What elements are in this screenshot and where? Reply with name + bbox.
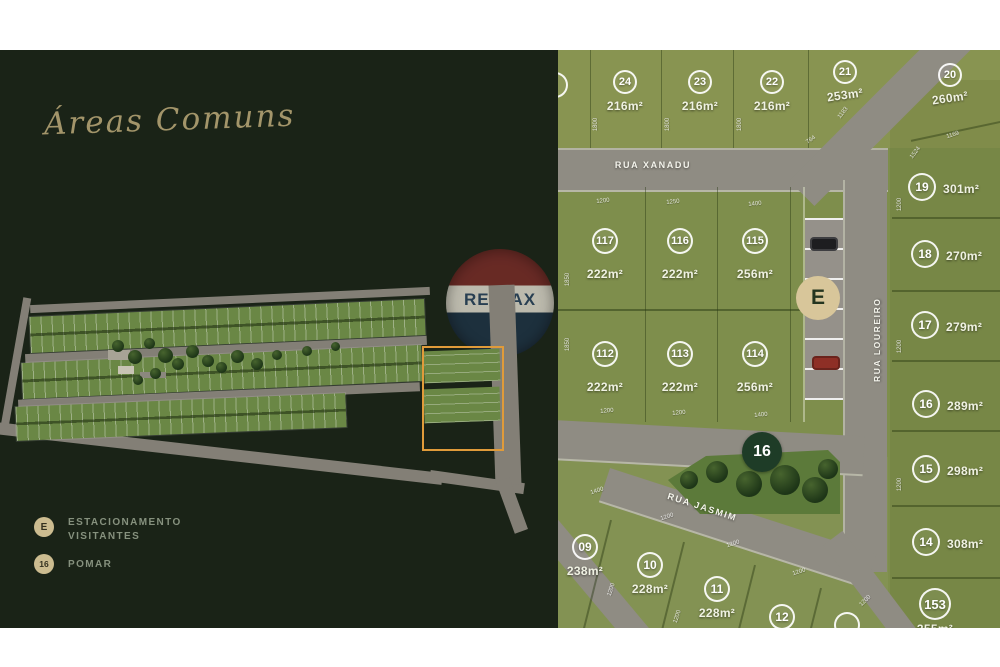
- tree: [216, 362, 227, 373]
- lot-area-label: 216m²: [590, 99, 660, 113]
- lot-153: 153 355m²: [900, 588, 970, 628]
- tree: [736, 471, 762, 497]
- lot-number-circle: 17: [911, 311, 939, 339]
- lot-116: 116 222m²: [645, 228, 715, 281]
- lot-number-circle: 10: [637, 552, 663, 578]
- dimension-label: 1200: [672, 609, 683, 624]
- legend-label-line: POMAR: [68, 558, 112, 572]
- lot-15: 15 298m²: [912, 455, 983, 483]
- dimension-label: 1800: [592, 118, 599, 131]
- lot-10: 10 228m²: [615, 552, 685, 596]
- dimension-label: 1850: [564, 338, 571, 351]
- legend-symbol-text: 16: [39, 559, 48, 569]
- tree: [706, 461, 728, 483]
- lot-18: 18 270m²: [911, 240, 982, 268]
- lot-boundary: [892, 360, 1000, 362]
- tree: [302, 346, 312, 356]
- lot-number-circle: 153: [919, 588, 951, 620]
- pomar-marker-text: 16: [753, 443, 771, 461]
- legend-label-line: VISITANTES: [68, 530, 182, 544]
- lot-115: 115 256m²: [720, 228, 790, 281]
- visitor-parking-marker: E: [796, 276, 840, 320]
- lot-number-circle: 22: [760, 70, 784, 94]
- lot-number-circle: 113: [667, 341, 693, 367]
- lot-13-circle-partial: [834, 612, 860, 628]
- dimension-label: 1200: [896, 478, 903, 491]
- lot-number-circle: 112: [592, 341, 618, 367]
- tree: [802, 477, 828, 503]
- tree: [172, 358, 184, 370]
- lot-16: 16 289m²: [912, 390, 983, 418]
- parking-marker-text: E: [811, 286, 825, 310]
- lot-number-circle: 21: [833, 60, 857, 84]
- lot-area-label: 222m²: [645, 267, 715, 281]
- dimension-label: 1524: [908, 145, 922, 160]
- highlight-sector-box: [422, 346, 504, 451]
- lot-number-circle: 24: [613, 70, 637, 94]
- lot-area-label: 355m²: [900, 622, 970, 628]
- legend-symbol-text: E: [41, 522, 48, 533]
- lot-area-label: 270m²: [946, 249, 982, 263]
- lot-area-label: 216m²: [737, 99, 807, 113]
- lot-117: 117 222m²: [570, 228, 640, 281]
- lot-area-label: 256m²: [720, 380, 790, 394]
- lot-number-circle: 16: [912, 390, 940, 418]
- lot-number-circle: 14: [912, 528, 940, 556]
- detail-map: RUA XANADU RUA LOUREIRO RUA JASMIM E 16 …: [558, 50, 1000, 628]
- tree: [128, 350, 142, 364]
- lot-area-label: 260m²: [914, 86, 985, 110]
- tree: [770, 465, 800, 495]
- lot-113: 113 222m²: [645, 341, 715, 394]
- tree: [150, 368, 161, 379]
- dimension-label: 1850: [564, 273, 571, 286]
- dimension-label: 1400: [748, 199, 762, 207]
- lot-area-label: 228m²: [682, 606, 752, 620]
- lot-11: 11 228m²: [682, 576, 752, 620]
- car-icon: [812, 356, 840, 370]
- dimension-label: 1200: [896, 198, 903, 211]
- dimension-label: 1200: [596, 196, 610, 204]
- dimension-label: 1800: [736, 118, 743, 131]
- tree: [331, 342, 340, 351]
- tree: [158, 348, 173, 363]
- lot-boundary: [892, 430, 1000, 432]
- lot-number-circle: 23: [688, 70, 712, 94]
- legend-parking-label: ESTACIONAMENTO VISITANTES: [68, 516, 182, 544]
- tree: [272, 350, 282, 360]
- car-icon: [810, 237, 838, 251]
- tree: [202, 355, 214, 367]
- lot-boundary: [661, 50, 662, 148]
- lot-number-circle: 114: [742, 341, 768, 367]
- screenshot: Áreas Comuns RE/MAX: [0, 0, 1000, 667]
- lot-24: 24 216m²: [590, 70, 660, 113]
- dimension-label: 1400: [754, 411, 768, 419]
- lot-boundary: [892, 577, 1000, 579]
- lot-area-label: 228m²: [615, 582, 685, 596]
- lot-09: 09 238m²: [558, 534, 620, 578]
- legend-pomar-symbol: 16: [34, 554, 54, 574]
- lot-number-circle: 18: [911, 240, 939, 268]
- lot-area-label: 222m²: [645, 380, 715, 394]
- lot-area-label: 256m²: [720, 267, 790, 281]
- lot-number-circle: 115: [742, 228, 768, 254]
- lot-19: 19 301m²: [908, 173, 979, 201]
- tree: [251, 358, 263, 370]
- lot-number-circle: 117: [592, 228, 618, 254]
- legend-label-line: ESTACIONAMENTO: [68, 516, 182, 530]
- lot-number-circle: 116: [667, 228, 693, 254]
- lot-area-label: 216m²: [665, 99, 735, 113]
- lot-boundary: [892, 290, 1000, 292]
- partial-lot-circle: [558, 72, 568, 98]
- lot-area-label: 238m²: [558, 564, 620, 578]
- lot-number-circle: 12: [769, 604, 795, 628]
- lot-area-label: 298m²: [947, 464, 983, 478]
- lot-17: 17 279m²: [911, 311, 982, 339]
- lot-14: 14 308m²: [912, 528, 983, 556]
- lot-area-label: 279m²: [946, 320, 982, 334]
- lot-boundary: [892, 505, 1000, 507]
- lot-number-circle: 09: [572, 534, 598, 560]
- dimension-label: 1200: [672, 409, 686, 417]
- lot-boundary: [892, 217, 1000, 219]
- street-label-xanadu: RUA XANADU: [588, 160, 718, 170]
- page-title: Áreas Comuns: [43, 98, 296, 143]
- lot-12: 12: [747, 604, 817, 628]
- legend-pomar-label: POMAR: [68, 558, 112, 572]
- lot-boundary: [558, 309, 805, 311]
- dimension-label: 1200: [792, 566, 807, 577]
- lot-area-label: 289m²: [947, 399, 983, 413]
- tree: [680, 471, 698, 489]
- legend-parking-symbol: E: [34, 517, 54, 537]
- lot-area-label: 222m²: [570, 380, 640, 394]
- lot-number-circle: 19: [908, 173, 936, 201]
- dimension-label: 764: [805, 134, 817, 145]
- lot-number-circle: 11: [704, 576, 730, 602]
- pomar-marker: 16: [742, 432, 782, 472]
- tree: [133, 375, 143, 385]
- lot-22: 22 216m²: [737, 70, 807, 113]
- dimension-label: 1200: [896, 340, 903, 353]
- lot-boundary: [790, 187, 791, 422]
- dimension-label: 1800: [664, 118, 671, 131]
- dimension-label: 1183: [836, 105, 849, 119]
- lot-boundary: [808, 50, 809, 148]
- lot-20: 20 260m²: [915, 63, 985, 105]
- lot-area-label: 301m²: [943, 182, 979, 196]
- left-panel: Áreas Comuns RE/MAX: [0, 50, 558, 628]
- street-label-loureiro: RUA LOUREIRO: [872, 297, 882, 382]
- tree: [112, 340, 124, 352]
- lot-21: 21 253m²: [810, 60, 880, 102]
- tree: [144, 338, 155, 349]
- dimension-label: 1250: [666, 197, 680, 205]
- lot-23: 23 216m²: [665, 70, 735, 113]
- masterplan-amenity: [118, 366, 134, 374]
- lot-number-circle: 20: [938, 63, 962, 87]
- lot-114: 114 256m²: [720, 341, 790, 394]
- lot-boundary: [717, 187, 718, 422]
- tree: [818, 459, 838, 479]
- tree: [186, 345, 199, 358]
- tree: [231, 350, 244, 363]
- lot-112: 112 222m²: [570, 341, 640, 394]
- lot-area-label: 308m²: [947, 537, 983, 551]
- dimension-label: 1200: [600, 407, 614, 415]
- dimension-label: 1169: [945, 129, 959, 139]
- lot-number-circle: 15: [912, 455, 940, 483]
- lot-area-label: 222m²: [570, 267, 640, 281]
